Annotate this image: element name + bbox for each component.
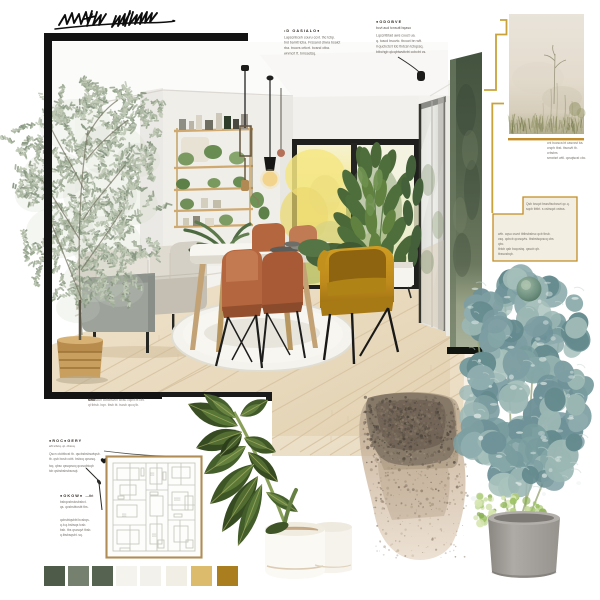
- svg-text:▒▒▒: ▒▒▒: [174, 497, 181, 501]
